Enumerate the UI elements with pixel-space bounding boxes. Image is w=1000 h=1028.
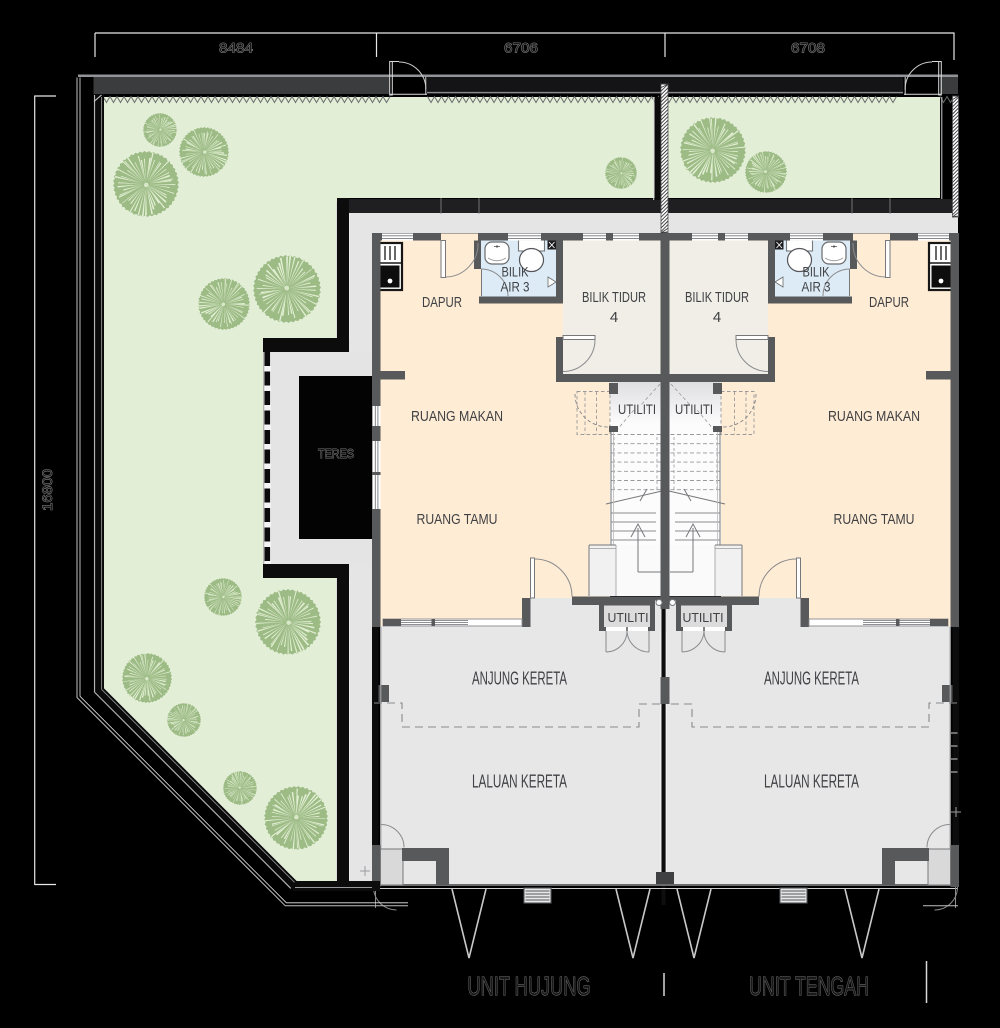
svg-text:UNIT HUJUNG: UNIT HUJUNG (468, 971, 591, 1001)
svg-text:4: 4 (713, 309, 721, 326)
svg-text:DAPUR: DAPUR (869, 294, 909, 311)
svg-text:TERES: TERES (318, 446, 354, 461)
svg-text:UNIT TENGAH: UNIT TENGAH (749, 971, 869, 1001)
svg-text:UTILITI: UTILITI (618, 401, 656, 417)
svg-text:UTILITI: UTILITI (683, 611, 724, 625)
svg-text:6708: 6708 (791, 41, 825, 56)
svg-text:BILIK TIDUR: BILIK TIDUR (685, 289, 749, 306)
svg-text:16800: 16800 (40, 469, 55, 511)
svg-text:RUANG MAKAN: RUANG MAKAN (828, 408, 920, 425)
svg-text:DAPUR: DAPUR (422, 294, 462, 311)
svg-text:AIR 3: AIR 3 (501, 280, 530, 295)
svg-text:LALUAN KERETA: LALUAN KERETA (764, 772, 859, 792)
svg-text:BILIK: BILIK (502, 265, 529, 280)
svg-text:BILIK: BILIK (803, 265, 830, 280)
svg-text:RUANG TAMU: RUANG TAMU (417, 511, 498, 528)
svg-text:UTILITI: UTILITI (608, 611, 649, 625)
svg-text:AIR 3: AIR 3 (802, 280, 831, 295)
svg-text:8484: 8484 (219, 41, 254, 56)
svg-text:4: 4 (610, 309, 618, 326)
svg-text:RUANG TAMU: RUANG TAMU (834, 511, 915, 528)
svg-text:ANJUNG KERETA: ANJUNG KERETA (764, 669, 859, 689)
svg-text:BILIK TIDUR: BILIK TIDUR (582, 289, 646, 306)
svg-text:UTILITI: UTILITI (675, 401, 713, 417)
svg-text:ANJUNG KERETA: ANJUNG KERETA (472, 669, 567, 689)
svg-text:6706: 6706 (504, 41, 538, 56)
svg-text:LALUAN KERETA: LALUAN KERETA (472, 772, 567, 792)
svg-text:RUANG MAKAN: RUANG MAKAN (411, 408, 503, 425)
